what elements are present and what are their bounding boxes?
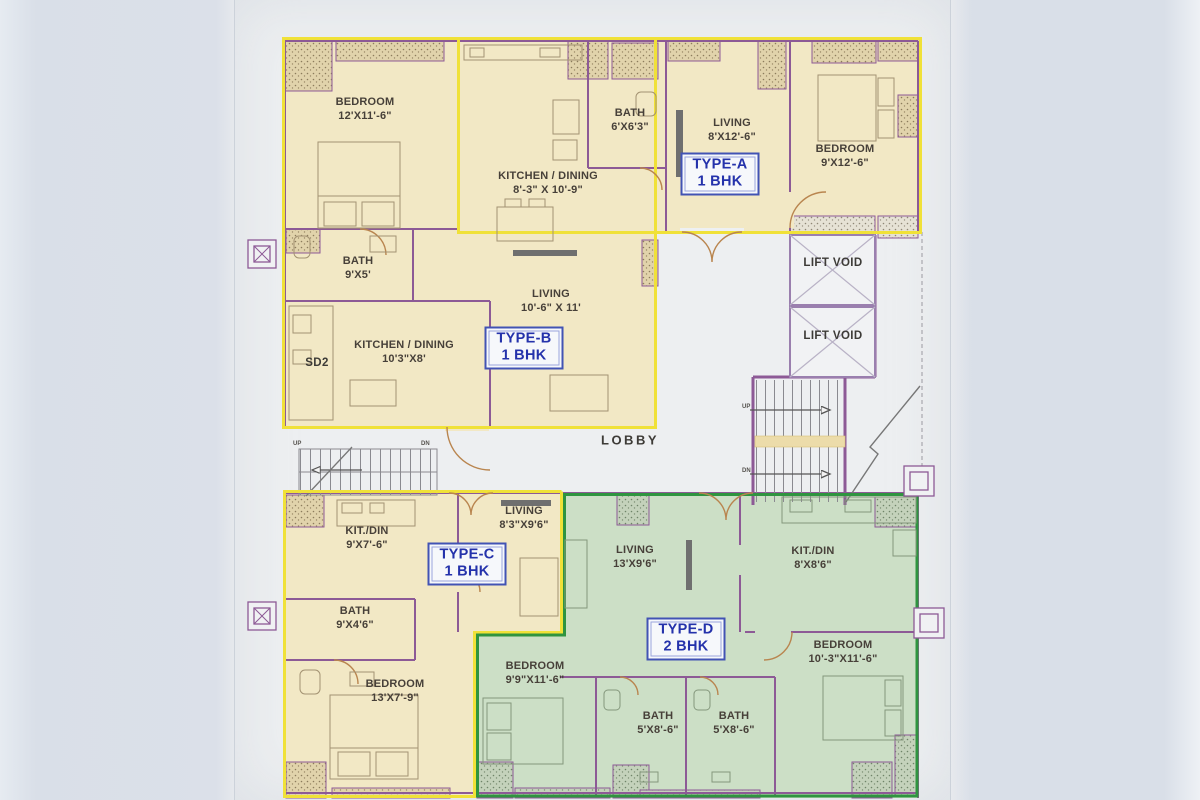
sd2-label: SD2 <box>305 357 329 369</box>
room-label-bedroom2-d: BEDROOM10'-3"X11'-6" <box>808 639 877 666</box>
lift-void-lower-label: LIFT VOID <box>803 330 862 342</box>
unit-badge-type-a: TYPE-A1 BHK <box>681 153 760 196</box>
unit-badge-type-b: TYPE-B1 BHK <box>485 327 564 370</box>
floorplan-linework <box>0 0 1200 800</box>
unit-badge-type-d: TYPE-D2 BHK <box>647 618 726 661</box>
room-label-living-a: LIVING8'X12'-6" <box>708 117 756 144</box>
room-label-living-c: LIVING8'3"X9'6" <box>499 505 548 532</box>
stair-dn-label-right: DN <box>742 468 751 474</box>
lobby-label: LOBBY <box>601 433 659 448</box>
stair-dn-label-left: DN <box>421 441 430 447</box>
room-label-kitdin-d: KIT./DIN8'X8'6" <box>791 545 834 572</box>
unit-badge-type-c: TYPE-C1 BHK <box>428 543 507 586</box>
room-label-bath2-d: BATH5'X8'-6" <box>713 710 754 737</box>
room-label-bedroom1-d: BEDROOM9'9"X11'-6" <box>506 660 565 687</box>
stair-up-label-left: UP <box>293 441 301 447</box>
room-label-kitchen-b: KITCHEN / DINING10'3"X8' <box>354 339 454 366</box>
room-label-living-b: LIVING10'-6" X 11' <box>521 288 581 315</box>
room-label-kitdin-c: KIT./DIN9'X7'-6" <box>345 525 388 552</box>
floorplan-canvas: BEDROOM12'X11'-6" BATH9'X5' KITCHEN / DI… <box>0 0 1200 800</box>
room-label-bedroom-c: BEDROOM13'X7'-9" <box>366 678 425 705</box>
staircase-left <box>299 447 437 496</box>
room-label-bath1-d: BATH5'X8'-6" <box>637 710 678 737</box>
room-label-bath-a: BATH6'X6'3" <box>611 107 649 134</box>
room-label-kitchen-a: KITCHEN / DINING8'-3" X 10'-9" <box>498 170 598 197</box>
staircase-right <box>750 380 920 502</box>
lift-void-upper-label: LIFT VOID <box>803 257 862 269</box>
room-label-bedroom-b: BEDROOM12'X11'-6" <box>336 96 395 123</box>
room-label-living-d: LIVING13'X9'6" <box>613 544 657 571</box>
stair-up-label-right: UP <box>742 404 750 410</box>
room-label-bath-b: BATH9'X5' <box>343 255 374 282</box>
room-label-bedroom-a: BEDROOM9'X12'-6" <box>816 143 875 170</box>
room-label-bath-c: BATH9'X4'6" <box>336 605 374 632</box>
